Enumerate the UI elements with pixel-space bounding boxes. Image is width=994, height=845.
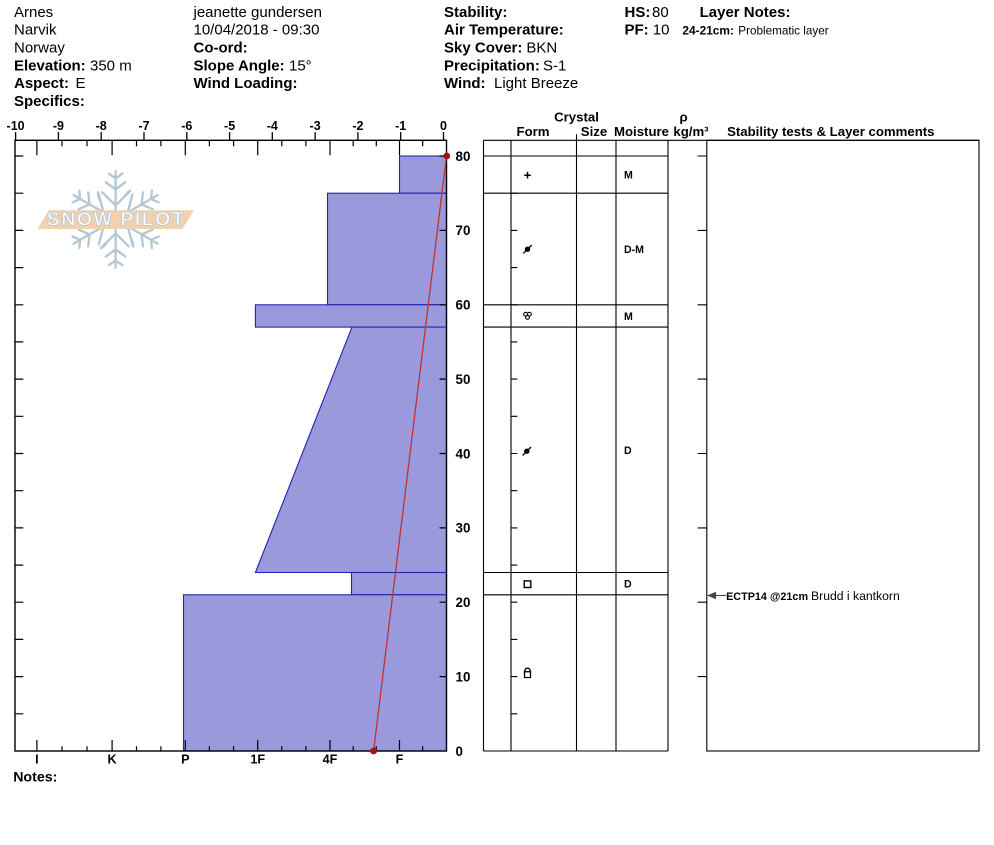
svg-text:10: 10 [653,22,670,39]
svg-text:Arnes: Arnes [14,4,53,21]
svg-text:20: 20 [456,595,471,610]
svg-text:jeanette gundersen: jeanette gundersen [193,4,322,21]
svg-text:Brudd i kantkorn: Brudd i kantkorn [811,589,900,603]
svg-text:ρ: ρ [680,109,688,124]
svg-text:-8: -8 [96,119,107,133]
svg-text:Sky Cover:: Sky Cover: [444,40,522,57]
svg-text:SNOW PILOT: SNOW PILOT [47,209,186,231]
svg-text:24-21cm:: 24-21cm: [682,24,734,38]
svg-text:-4: -4 [267,119,278,133]
svg-text:50: 50 [456,372,471,387]
svg-text:E: E [76,75,86,92]
svg-text:-5: -5 [224,119,235,133]
svg-text:Specifics:: Specifics: [14,93,85,110]
svg-text:HS:: HS: [625,4,651,21]
svg-text:D: D [624,579,632,591]
svg-text:I: I [35,753,39,767]
svg-text:60: 60 [456,298,471,313]
svg-text:Narvik: Narvik [14,22,57,39]
svg-text:80: 80 [652,4,669,21]
svg-text:K: K [108,753,117,767]
svg-text:0: 0 [456,744,463,759]
svg-text:M: M [624,170,633,182]
svg-text:BKN: BKN [526,40,557,57]
svg-text:-1: -1 [395,119,406,133]
svg-text:Aspect:: Aspect: [14,75,69,92]
svg-text:Wind Loading:: Wind Loading: [194,75,298,92]
svg-text:350 m: 350 m [90,57,132,74]
svg-text:80: 80 [456,149,471,164]
svg-text:F: F [396,753,404,767]
svg-text:30: 30 [456,521,471,536]
svg-text:70: 70 [456,223,471,238]
svg-text:-3: -3 [310,119,321,133]
svg-text:Wind:: Wind: [444,75,486,92]
svg-text:PF:: PF: [625,22,649,39]
svg-text:Precipitation:: Precipitation: [444,57,540,74]
svg-text:Elevation:: Elevation: [14,57,86,74]
svg-text:S-1: S-1 [543,57,566,74]
svg-text:P: P [181,753,189,767]
svg-text:-6: -6 [181,119,192,133]
svg-text:Layer Notes:: Layer Notes: [700,4,791,21]
svg-text:D-M: D-M [624,244,644,256]
svg-text:Form: Form [517,124,550,139]
svg-text:M: M [624,311,633,323]
svg-text:Notes:: Notes: [13,770,57,786]
svg-text:kg/m³: kg/m³ [673,124,709,139]
svg-text:Size: Size [581,124,607,139]
svg-text:Stability:: Stability: [444,4,507,21]
svg-text:D: D [624,445,632,457]
svg-text:10/04/2018 - 09:30: 10/04/2018 - 09:30 [194,22,320,39]
svg-text:10: 10 [456,669,471,684]
svg-text:Problematic layer: Problematic layer [738,25,828,38]
svg-text:Co-ord:: Co-ord: [194,40,248,57]
svg-text:Moisture: Moisture [614,124,669,139]
svg-text:Air Temperature:: Air Temperature: [444,22,564,39]
svg-text:-9: -9 [53,119,64,133]
svg-text:Stability tests & Layer commen: Stability tests & Layer comments [727,124,934,139]
svg-text:-2: -2 [352,119,363,133]
svg-text:40: 40 [456,446,471,461]
svg-text:15°: 15° [289,57,312,74]
svg-text:-7: -7 [138,119,149,133]
svg-text:1F: 1F [250,753,265,767]
svg-text:ECTP14 @21cm: ECTP14 @21cm [726,591,808,603]
svg-text:0: 0 [440,119,447,133]
svg-text:Crystal: Crystal [554,109,599,124]
svg-text:-10: -10 [7,119,25,133]
svg-text:Slope Angle:: Slope Angle: [194,57,285,74]
svg-text:4F: 4F [323,753,338,767]
svg-text:Light Breeze: Light Breeze [494,75,578,92]
svg-text:Norway: Norway [14,40,65,57]
